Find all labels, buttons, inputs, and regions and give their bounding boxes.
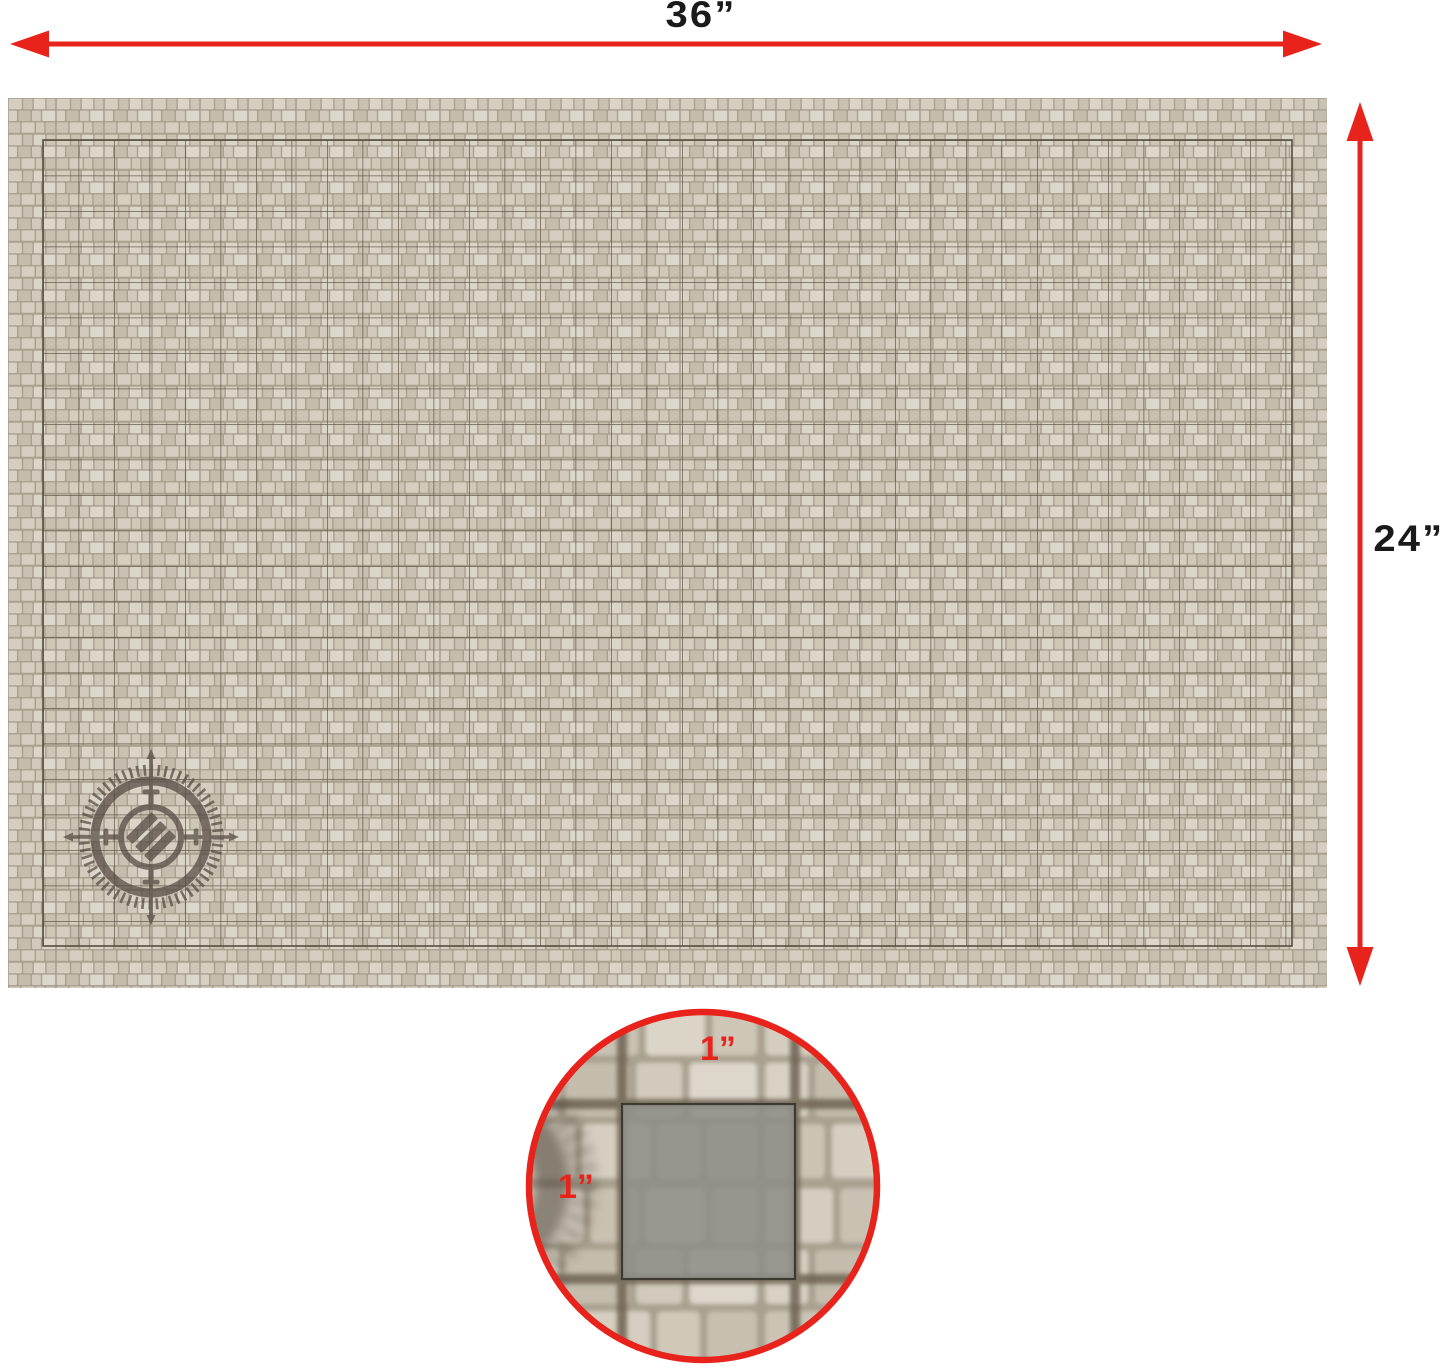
battle-mat-graphic (8, 98, 1327, 988)
inset-left-inch-label: 1” (558, 1168, 594, 1206)
arrowhead-down-icon (1347, 947, 1374, 986)
zoom-inset: 1” 1” (522, 1005, 884, 1367)
product-diagram-canvas: 36” 24” (0, 0, 1445, 1370)
width-arrow-shaft (38, 42, 1294, 47)
arrowhead-left-icon (10, 31, 49, 58)
zoom-inset-graphic: 1” 1” (522, 1005, 884, 1367)
highlighted-one-inch-square (622, 1104, 795, 1279)
height-dimension-label: 24” (1373, 518, 1444, 560)
arrowhead-right-icon (1283, 31, 1322, 58)
inset-top-inch-label: 1” (700, 1030, 736, 1068)
width-dimension-arrow (8, 29, 1324, 59)
one-inch-grid-overlay (43, 140, 1292, 946)
arrowhead-up-icon (1347, 102, 1374, 141)
battle-mat-image (8, 98, 1327, 988)
height-arrow-shaft (1358, 130, 1363, 958)
height-dimension-arrow (1345, 100, 1375, 988)
